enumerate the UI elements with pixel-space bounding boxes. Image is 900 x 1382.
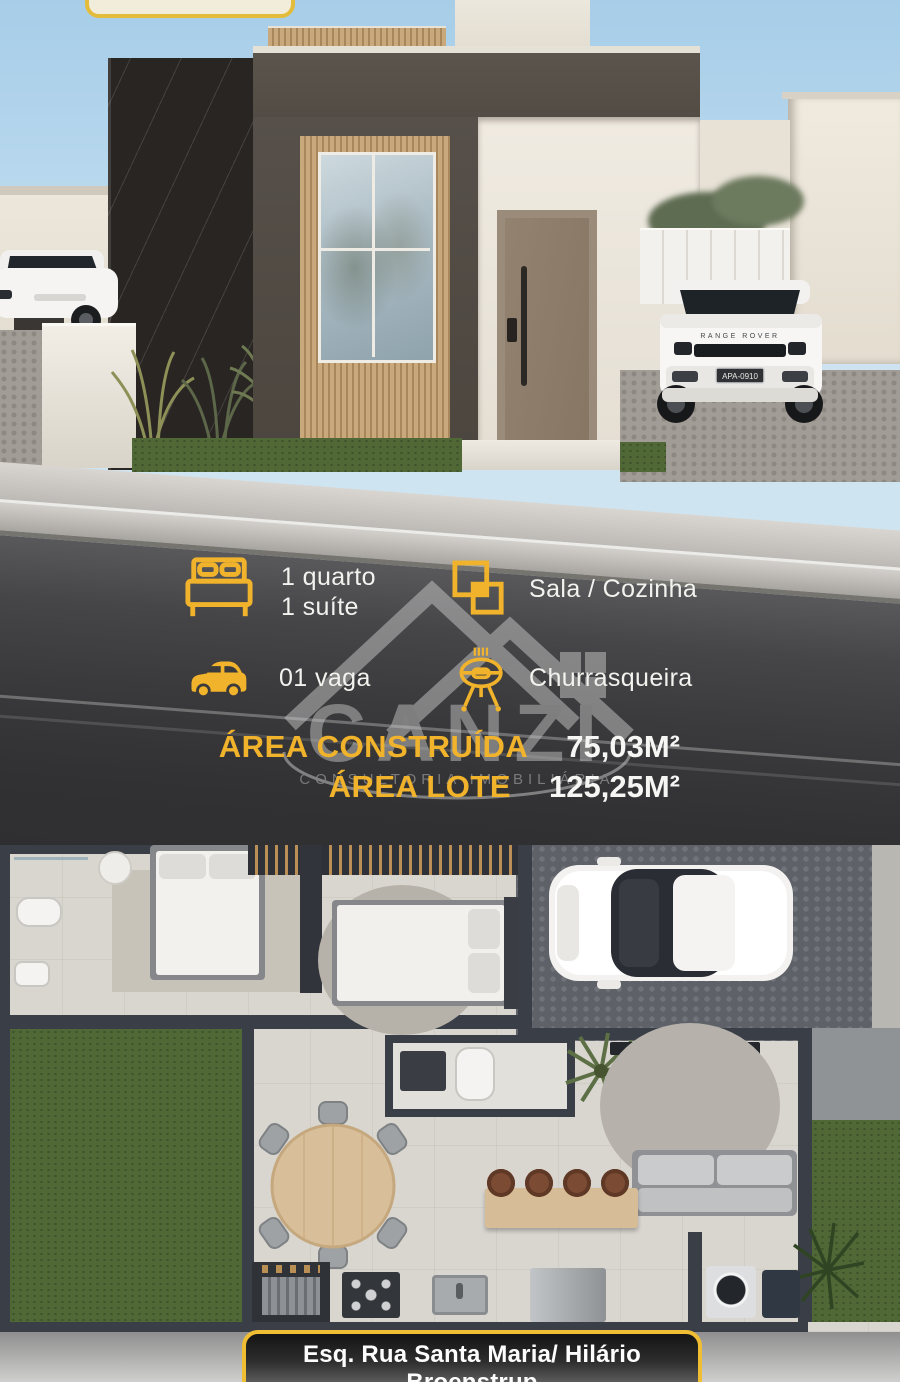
address-bar: Esq. Rua Santa Maria/ Hilário Broenstrup…	[242, 1330, 702, 1382]
floor-plan-render	[0, 845, 900, 1332]
parapet-coping	[253, 46, 700, 53]
front-lawn	[132, 438, 462, 472]
built-area-row: ÁREA CONSTRUÍDA 75,03M²	[100, 729, 680, 765]
plan-barbecue-handles	[262, 1265, 320, 1273]
window-mullion-h	[318, 248, 430, 251]
address-line1: Esq. Rua Santa Maria/ Hilário Broenstrup	[246, 1341, 698, 1382]
left-driveway-cobblestone	[0, 330, 48, 475]
top-banner-cropped	[85, 0, 295, 18]
built-area-value: 75,03M²	[566, 729, 680, 765]
plan-sink-1	[14, 961, 50, 987]
feature-barbecue: Churrasqueira	[529, 663, 693, 693]
plan-wall-left	[0, 845, 10, 1332]
background-tree-2	[712, 176, 804, 226]
plan-stove	[342, 1272, 400, 1318]
plan-master-wardrobe	[248, 845, 302, 875]
hood-badge-text: RANGE ROVER	[700, 333, 779, 340]
plan-sofa-cushion-2	[717, 1155, 792, 1185]
plan-wall-laundry	[688, 1232, 702, 1322]
plan-stool-1	[487, 1169, 515, 1197]
bed-icon	[184, 556, 254, 620]
plan-plant-right	[788, 1215, 868, 1315]
plan-suite-pillow-1	[468, 909, 500, 949]
plan-wall-suite-right	[518, 845, 532, 1041]
door-handle	[521, 266, 527, 386]
car-icon	[186, 650, 250, 706]
plan-sofa-cushion-1	[638, 1155, 714, 1185]
barbecue-grill-icon	[455, 644, 509, 716]
plan-laundry-tub	[762, 1270, 800, 1318]
plan-dining-set	[242, 1100, 422, 1272]
plan-suite-headboard	[504, 897, 518, 1009]
real-estate-flyer: RANGE ROVER APA-0910	[0, 0, 900, 1382]
plan-suite-wardrobe	[322, 845, 518, 875]
dark-fascia-band	[253, 53, 700, 117]
plan-suite-pillow-2	[468, 953, 500, 993]
plan-shower-glass	[14, 857, 88, 860]
entry-step	[462, 440, 622, 470]
feature-rooms-line1: 1 quarto	[281, 562, 376, 592]
feature-parking: 01 vaga	[279, 663, 371, 693]
plan-lawn-left	[10, 1029, 242, 1322]
plan-patio-right	[812, 1028, 900, 1120]
front-door	[505, 218, 589, 448]
plan-fridge	[530, 1268, 606, 1322]
lot-area-row: ÁREA LOTE 125,25M²	[100, 769, 680, 805]
feature-living-kitchen: Sala / Cozinha	[529, 574, 697, 604]
overlapping-squares-icon	[452, 560, 506, 618]
front-window	[318, 152, 436, 363]
window-mullion-v	[372, 152, 375, 357]
front-lawn-right	[620, 442, 666, 472]
plan-walkway-right	[872, 845, 900, 1041]
range-rover-car: RANGE ROVER APA-0910	[642, 268, 838, 438]
plan-stool-3	[563, 1169, 591, 1197]
built-area-label: ÁREA CONSTRUÍDA	[219, 729, 528, 765]
plan-toilet-1	[16, 897, 62, 927]
plan-wc-vanity	[400, 1051, 446, 1091]
plan-toilet-2	[455, 1047, 495, 1101]
plan-stool-4	[601, 1169, 629, 1197]
lot-area-value: 125,25M²	[549, 769, 680, 805]
license-plate-text: APA-0910	[722, 372, 758, 381]
plan-car-top-view	[545, 855, 801, 991]
feature-rooms-line2: 1 suíte	[281, 592, 376, 622]
feature-rooms: 1 quarto 1 suíte	[281, 562, 376, 622]
plan-master-pillow-l	[159, 854, 206, 879]
plan-barbecue-grill	[262, 1277, 320, 1315]
plan-sink-faucet	[456, 1283, 463, 1299]
plan-stool-2	[525, 1169, 553, 1197]
door-keypad	[507, 318, 517, 342]
plan-master-nightstand	[98, 851, 132, 885]
right-house-roof-edge	[782, 92, 900, 99]
plan-washer	[706, 1266, 756, 1318]
plan-sofa-seat	[638, 1188, 792, 1212]
lot-area-label: ÁREA LOTE	[329, 769, 511, 805]
